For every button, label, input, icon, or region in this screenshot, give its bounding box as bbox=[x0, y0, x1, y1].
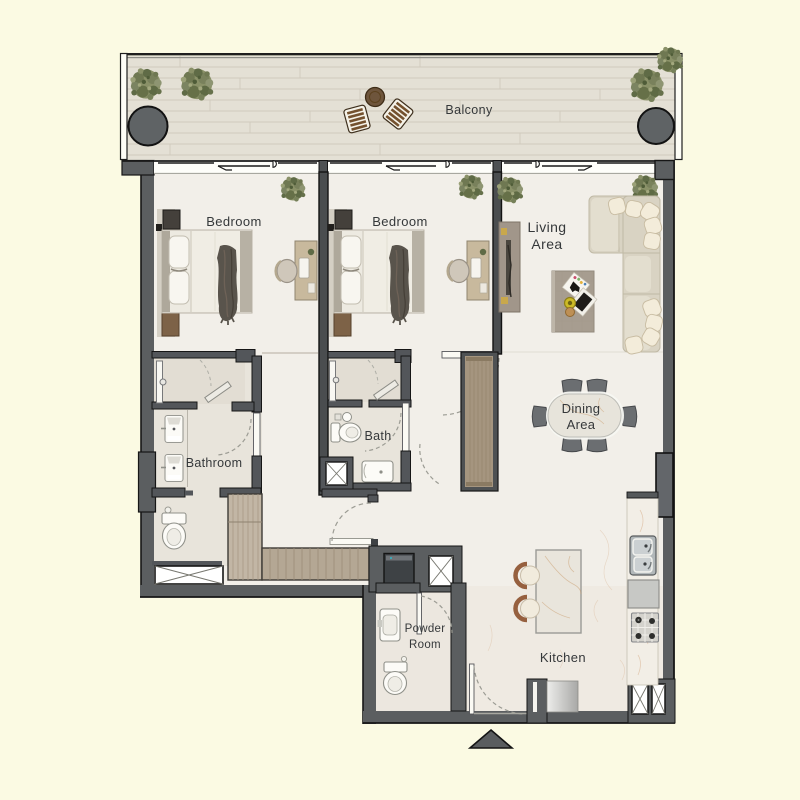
svg-text:Powder: Powder bbox=[405, 623, 446, 635]
svg-text:Dining: Dining bbox=[562, 401, 601, 416]
svg-text:Living: Living bbox=[528, 219, 567, 235]
svg-text:Room: Room bbox=[409, 639, 441, 651]
svg-text:Area: Area bbox=[567, 417, 596, 432]
svg-text:Bedroom: Bedroom bbox=[206, 214, 262, 229]
svg-text:Area: Area bbox=[531, 236, 562, 252]
svg-text:Bedroom: Bedroom bbox=[372, 214, 428, 229]
svg-text:Balcony: Balcony bbox=[445, 103, 493, 117]
svg-text:Kitchen: Kitchen bbox=[540, 650, 586, 665]
svg-text:Bath: Bath bbox=[365, 429, 392, 443]
svg-text:Bathroom: Bathroom bbox=[186, 456, 243, 470]
